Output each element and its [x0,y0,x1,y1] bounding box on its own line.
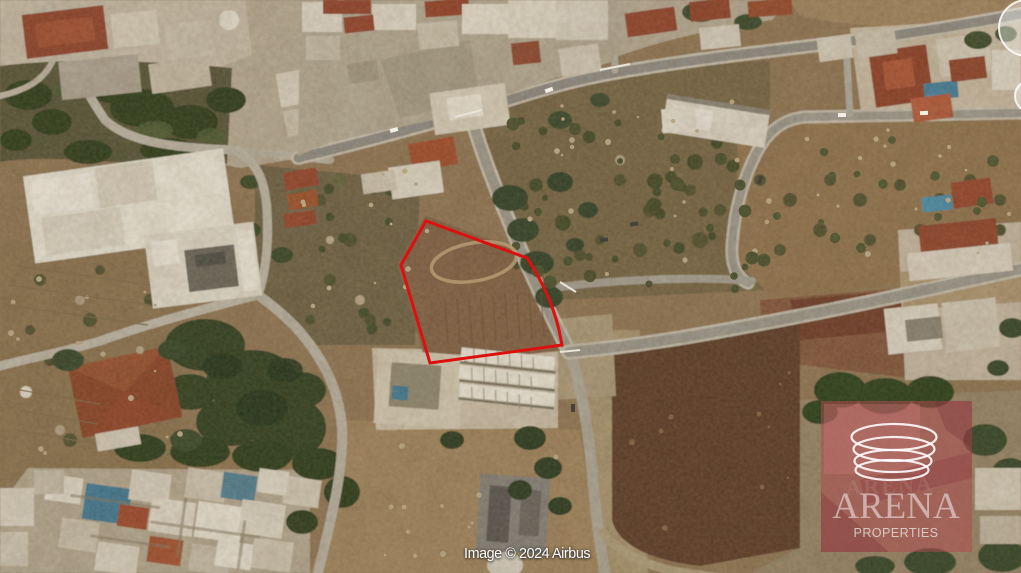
svg-text:PROPERTIES: PROPERTIES [854,526,939,540]
svg-text:ARENA: ARENA [832,486,960,527]
svg-text:Image © 2024 Airbus: Image © 2024 Airbus [464,546,590,562]
